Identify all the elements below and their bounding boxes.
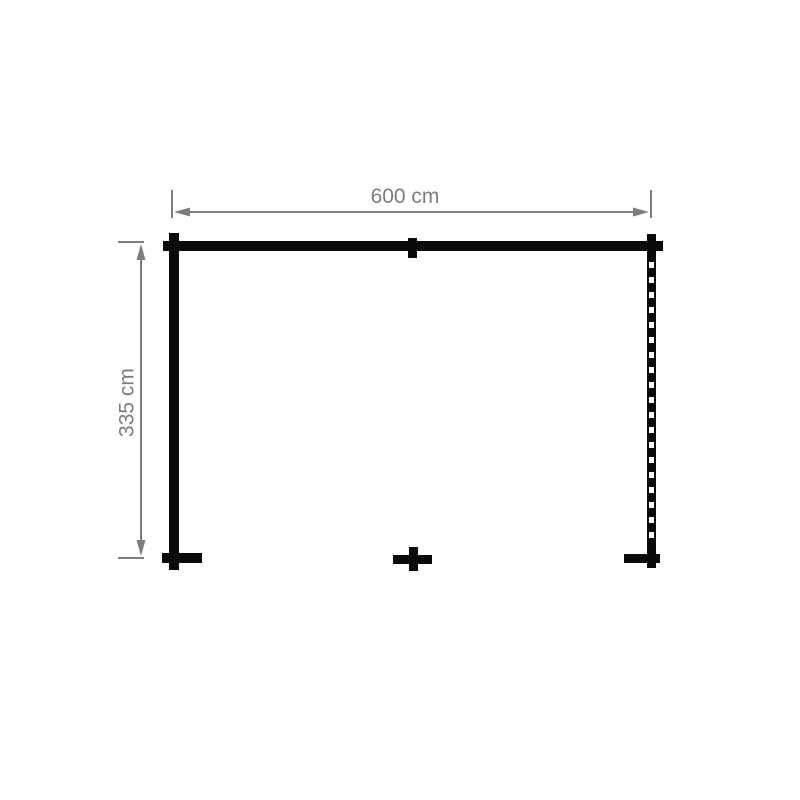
floor-plan-diagram: 600 cm 335 cm	[0, 0, 800, 800]
right-wall-dashed	[647, 234, 656, 568]
depth-dimension-label: 335 cm	[117, 368, 138, 438]
top-middle-post	[408, 238, 417, 258]
depth-arrowhead-bottom	[137, 540, 146, 556]
depth-arrowhead-top	[137, 244, 146, 260]
right-wall-dash-pattern	[649, 262, 654, 546]
left-wall	[169, 233, 179, 570]
width-arrowhead-right	[633, 208, 649, 217]
bottom-left-post	[162, 553, 202, 563]
bottom-right-post	[624, 554, 660, 563]
width-dimension-label: 600 cm	[365, 186, 445, 207]
width-arrowhead-left	[174, 208, 190, 217]
bottom-middle-post-vertical	[409, 547, 418, 571]
